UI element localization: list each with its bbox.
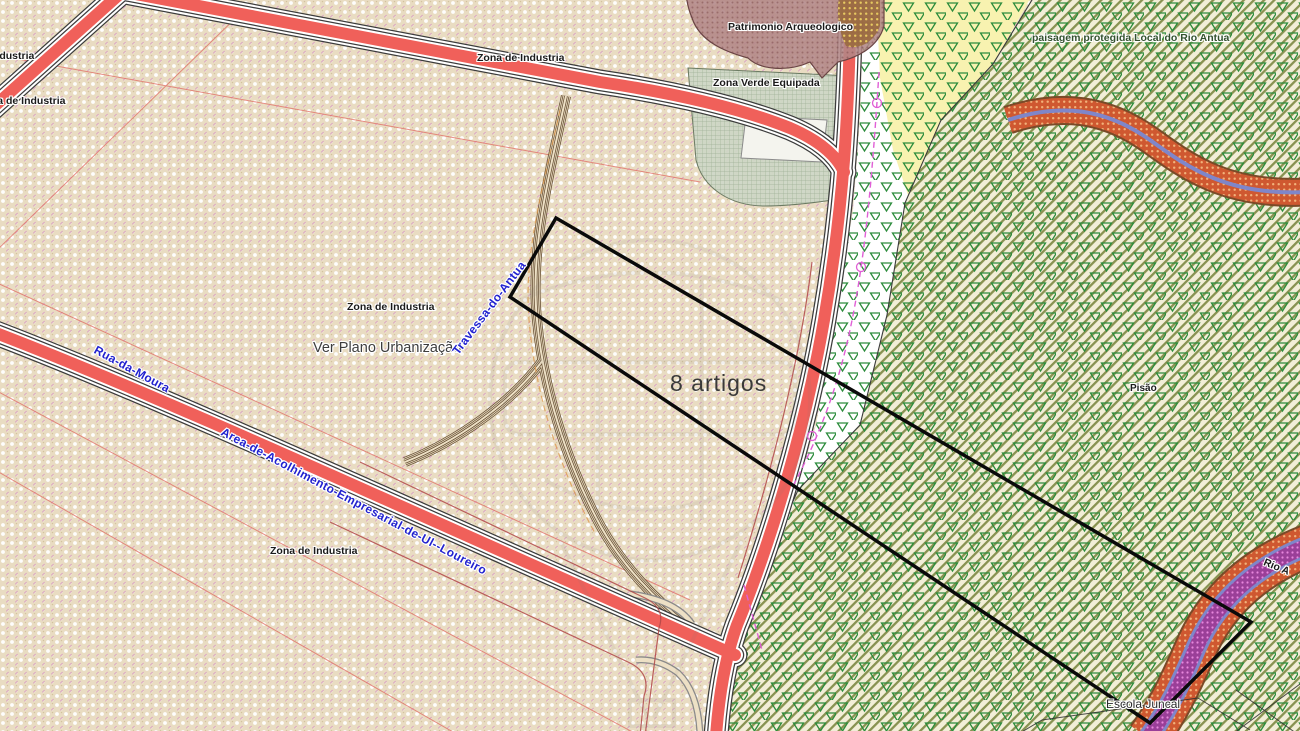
parcel-annotation-8-artigos: 8 artigos <box>670 370 767 397</box>
map-canvas <box>0 0 1300 731</box>
zone-label-patrimonio-arqueologico: Patrimonio Arqueologico <box>728 21 853 33</box>
zone-label-zona-industria-bottom: Zona de Industria <box>270 545 358 557</box>
zone-label-industria-topleft: Industria <box>0 50 34 62</box>
place-label-escola: Escola Juncal <box>1106 697 1180 711</box>
note-ver-plano-urbanizacao: Ver Plano Urbanização <box>313 340 461 356</box>
zone-label-zona-verde-equipada: Zona Verde Equipada <box>713 77 820 89</box>
zone-label-zona-industria-top: Zona de Industria <box>477 52 565 64</box>
zone-label-zona-industria-mid: Zona de Industria <box>347 301 435 313</box>
zone-label-zona-industria-topleft: Zona de Industria <box>0 95 66 107</box>
zoning-map: Industria Zona de Industria Zona de Indu… <box>0 0 1300 731</box>
place-label-pisao: Pisão <box>1130 383 1157 394</box>
zone-label-paisagem-protegida: paisagem protegida Local do Rio Antua <box>1032 32 1229 44</box>
